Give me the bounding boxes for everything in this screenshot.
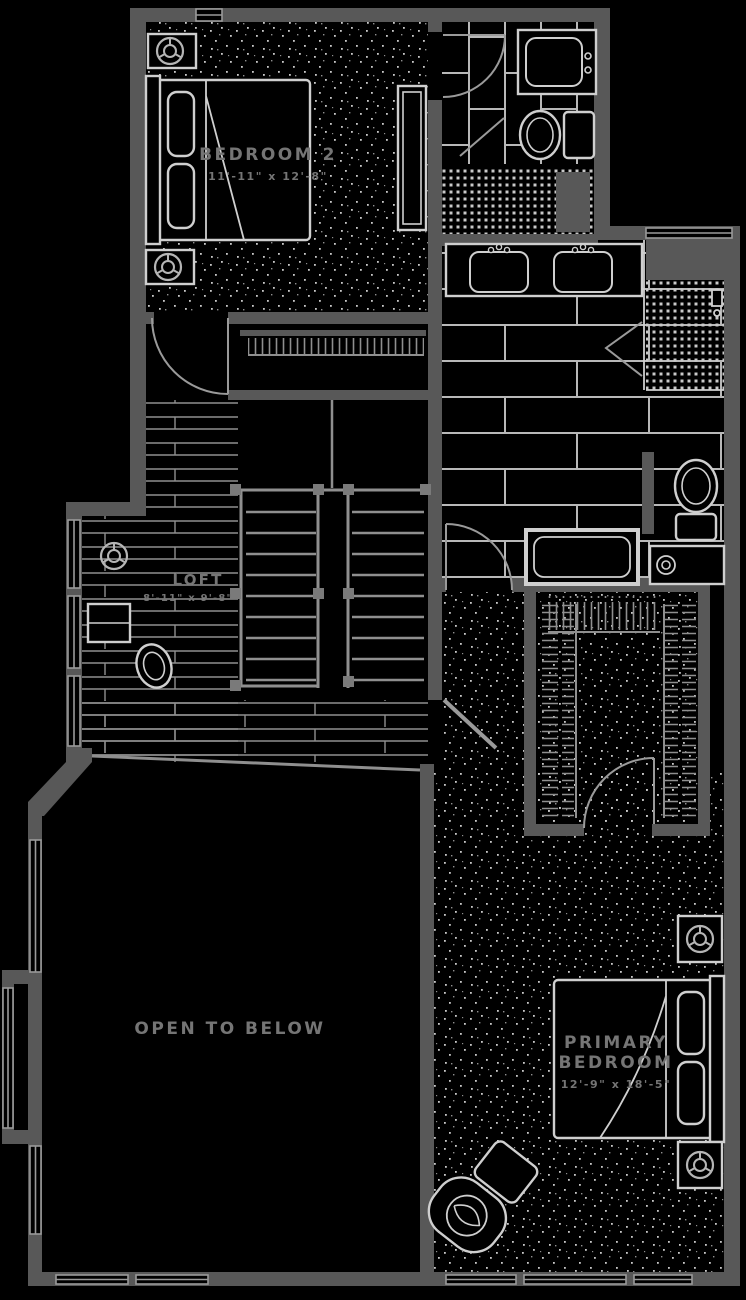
stair-treads-right-flight: [352, 512, 424, 680]
nightstand-icon: [678, 1142, 722, 1188]
window: [196, 9, 222, 21]
door-bedroom2: [152, 318, 228, 394]
floor-plan-page: BEDROOM 2 11'-11" x 12'-8" LOFT 8'-11" x…: [0, 0, 746, 1300]
stairs: [230, 400, 431, 691]
primary-bedroom-label-line2: BEDROOM: [558, 1053, 673, 1073]
wall-primary-bath-bottom-b: [512, 578, 524, 592]
primary-bedroom-dimensions: 12'-9" x 18'-5": [561, 1078, 672, 1091]
window: [30, 840, 41, 972]
toilet-icon-primary: [675, 460, 717, 540]
bath2-shower-bench: [556, 172, 590, 232]
window: [30, 1146, 41, 1234]
wall-bedroom2-bottom: [228, 312, 440, 324]
wall-left-bedroom2: [130, 8, 146, 334]
wall-right: [724, 226, 740, 1286]
primary-shower-bench: [646, 240, 724, 280]
closet-hanger-rod-left: [542, 604, 574, 818]
dresser-icon: [398, 86, 426, 230]
wood-floor-loft-upper: [146, 400, 238, 516]
wall-bath2-left-a: [428, 8, 442, 32]
bedroom2-label: BEDROOM 2: [199, 145, 337, 165]
wall-toilet-privacy: [642, 452, 654, 534]
open-to-below-label: OPEN TO BELOW: [134, 1019, 325, 1039]
wood-floor-hall: [82, 700, 428, 762]
bedroom2-dimensions: 11'-11" x 12'-8": [208, 170, 328, 183]
bathtub-icon: [526, 530, 638, 584]
carpet-hall: [442, 592, 524, 772]
vanity-icon-bath2: [518, 30, 596, 94]
window: [646, 228, 732, 238]
cabinet-drain-icon: [650, 546, 724, 584]
loft-dimensions: 8'-11" x 9'-8": [143, 593, 233, 604]
wall-top-bedroom2: [130, 8, 440, 22]
window: [68, 520, 80, 588]
wall-stair-top: [228, 390, 442, 400]
window: [68, 596, 80, 668]
wall-closet-left: [524, 578, 536, 836]
wall-closet-right: [698, 578, 710, 836]
window: [446, 1275, 516, 1284]
wall-top-bath2: [432, 8, 610, 22]
loft-label: LOFT: [172, 571, 223, 589]
stair-treads-left-flight: [246, 512, 316, 680]
wall-hall-closet: [240, 330, 426, 336]
primary-bedroom-label-line1: PRIMARY: [564, 1033, 668, 1053]
window: [634, 1275, 692, 1284]
hall-closet-hanger-rod: [248, 338, 424, 354]
vanity-icon-primary: [446, 244, 642, 296]
cabinet-icon-loft: [88, 604, 130, 642]
window: [136, 1275, 208, 1284]
wall-closet-bottom-a: [524, 824, 584, 836]
wall-closet-bottom-b: [652, 824, 710, 836]
floor-plan-svg: BEDROOM 2 11'-11" x 12'-8" LOFT 8'-11" x…: [0, 0, 746, 1300]
window: [3, 988, 13, 1128]
window: [524, 1275, 626, 1284]
nightstand-icon: [678, 916, 722, 962]
window: [56, 1275, 128, 1284]
closet-hanger-rod-right: [664, 604, 696, 818]
wall-primary-bath-bottom-a: [428, 578, 446, 592]
wall-left-hall: [130, 334, 146, 514]
window: [68, 676, 80, 746]
